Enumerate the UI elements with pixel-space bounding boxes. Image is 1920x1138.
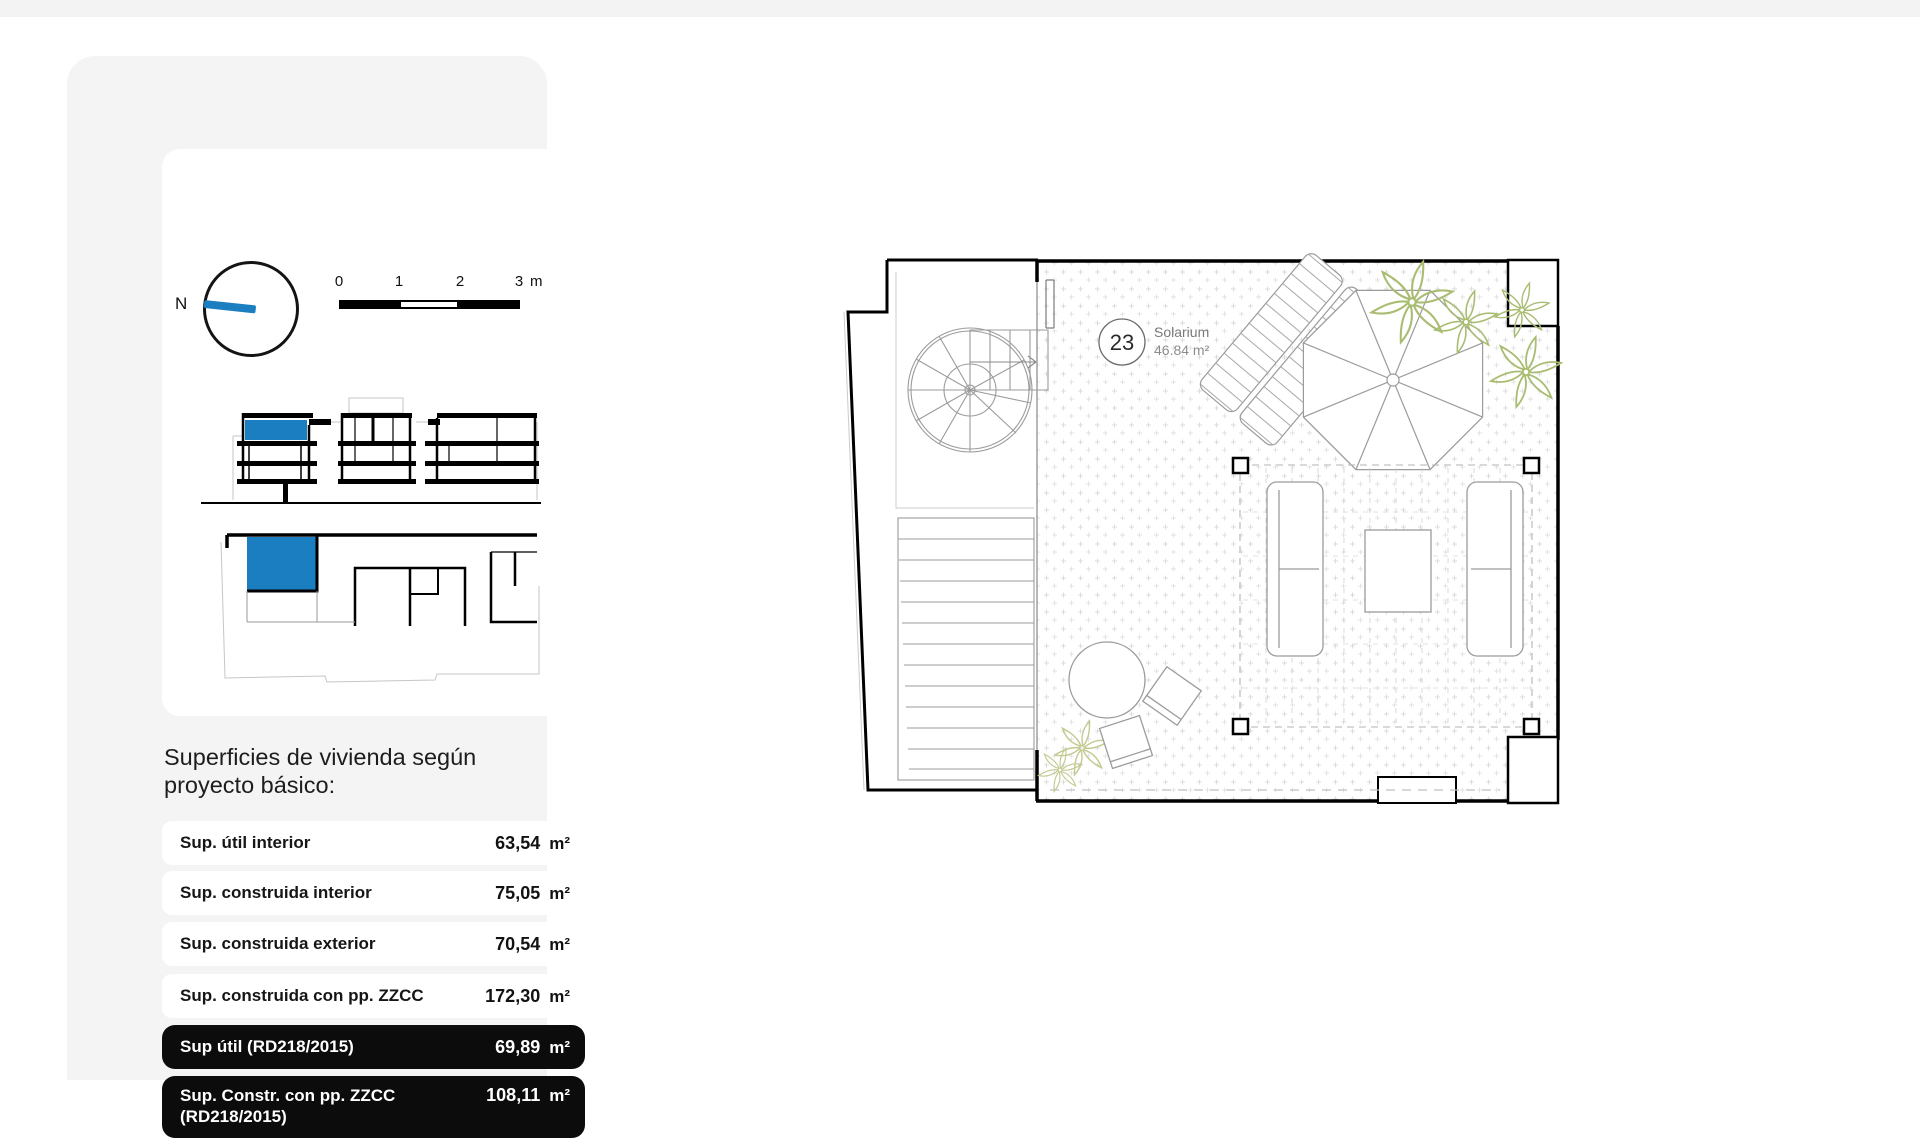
area-row-unit: m² [549,935,570,955]
area-row-value: 69,89 [495,1037,540,1058]
area-row-label: Sup. construida exterior [180,934,376,954]
compass-north-label: N [175,294,187,314]
area-row-value: 70,54 [495,934,540,955]
scale-tick-1: 1 [395,273,403,290]
area-row-value: 63,54 [495,833,540,854]
pergola-post [1524,458,1539,473]
area-row-label: Sup. construida interior [180,883,372,903]
pergola-post [1524,719,1539,734]
area-row-util-interior: Sup. útil interior 63,54m² [162,821,585,865]
unit-number: 23 [1110,330,1134,355]
floorplan-drawing: 23 Solarium 46.84 m² [820,250,1590,820]
scale-tick-0: 0 [335,273,343,290]
area-row-value: 108,11 [486,1085,540,1106]
area-row-label: Sup. Constr. con pp. ZZCC (RD218/2015) [180,1085,460,1128]
area-row-label: Sup. construida con pp. ZZCC [180,986,424,1006]
area-row-unit: m² [549,1038,570,1058]
area-row-value: 75,05 [495,883,540,904]
pergola-post [1233,719,1248,734]
area-row-unit: m² [549,987,570,1007]
building-elevation-diagram [197,392,545,514]
surfaces-heading: Superficies de vivienda según proyecto b… [164,743,544,799]
area-row-label: Sup. útil interior [180,833,310,853]
elevation-middle-block [338,413,416,484]
umbrella-icon [1303,290,1482,469]
straight-staircase [898,518,1034,780]
area-row-construida-interior: Sup. construida interior 75,05m² [162,871,585,915]
building-keyplan-diagram [205,526,545,686]
coffee-table [1365,530,1431,612]
pergola-post [1233,458,1248,473]
scalebar-segment [399,300,459,309]
area-row-util-rd218: Sup útil (RD218/2015) 69,89m² [162,1025,585,1069]
spiral-staircase [908,328,1048,452]
scalebar-segment [459,300,520,309]
scale-tick-2: 2 [456,273,464,290]
scalebar-segment [339,300,399,309]
elevation-right-block [425,413,539,484]
highlighted-unit-keyplan [247,537,317,591]
area-row-unit: m² [549,834,570,854]
scale-tick-3: 3 [515,273,523,290]
area-row-unit: m² [549,884,570,904]
scale-unit-label: m [530,273,543,290]
area-row-label: Sup útil (RD218/2015) [180,1037,354,1057]
highlighted-unit-elevation [245,420,307,440]
area-row-construida-exterior: Sup. construida exterior 70,54m² [162,922,585,966]
room-area: 46.84 m² [1154,342,1210,358]
corner-pillar-bottom-right [1508,737,1558,803]
room-name: Solarium [1154,324,1209,340]
stair-block [844,260,1048,790]
area-row-construida-zzcc: Sup. construida con pp. ZZCC 172,30m² [162,974,585,1018]
plan-info-sidebar: N 0 1 2 3 m [67,56,547,1080]
area-row-unit: m² [549,1086,570,1106]
area-row-constr-zzcc-rd218: Sup. Constr. con pp. ZZCC (RD218/2015) 1… [162,1076,585,1138]
top-strip [0,0,1920,17]
area-row-value: 172,30 [485,986,540,1007]
